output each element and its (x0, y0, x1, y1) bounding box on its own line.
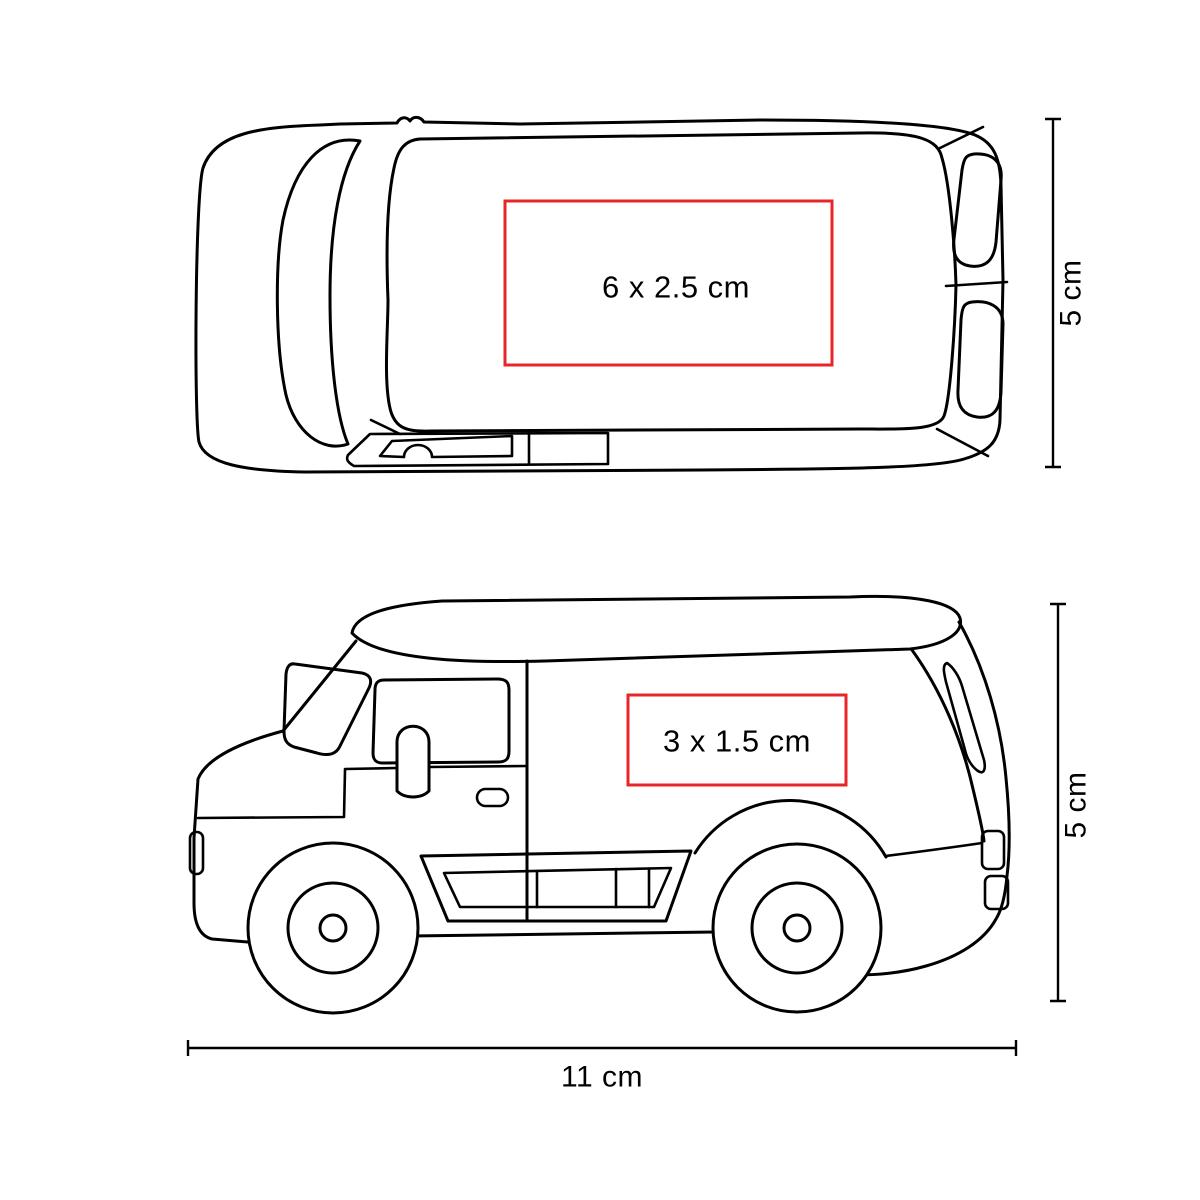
side-view-door-handle (477, 789, 508, 806)
side-view-rear-crease (886, 843, 982, 856)
van-side-view: 3 x 1.5 cm (190, 596, 1009, 1013)
top-view-rear-window-upper (954, 154, 1002, 266)
diagram-canvas: 6 x 2.5 cm 5 cm (0, 0, 1200, 1200)
rear-wheel-tire (713, 844, 881, 1012)
side-view-headlight (190, 832, 203, 874)
top-view-body-outline (196, 117, 1003, 472)
side-view-belt-line (345, 766, 527, 769)
van-top-view: 6 x 2.5 cm (196, 117, 1007, 472)
length-dimension: 11 cm (188, 1040, 1016, 1094)
side-print-area-label: 3 x 1.5 cm (663, 724, 811, 759)
side-view-taillight-upper (982, 831, 1004, 869)
side-view-door-window (373, 679, 509, 763)
side-view-rear-pillar (912, 650, 984, 841)
dimension-line (188, 1040, 1016, 1056)
side-height-dimension: 5 cm (1050, 604, 1093, 1001)
side-view-rocker-inner (444, 868, 671, 907)
side-view-mirror-bump (397, 726, 429, 797)
side-view-body-bottom (410, 932, 715, 936)
top-view-windshield (277, 140, 360, 446)
product-print-area-diagram: 6 x 2.5 cm 5 cm (0, 0, 1200, 1200)
top-height-dimension-label: 5 cm (1055, 259, 1088, 326)
top-view-side-step-inner (380, 436, 512, 457)
side-view-rocker-dividers (537, 869, 649, 907)
top-print-area-label: 6 x 2.5 cm (602, 270, 750, 305)
length-dimension-label: 11 cm (561, 1061, 643, 1094)
side-height-dimension-label: 5 cm (1060, 771, 1093, 838)
top-view-rear-window-lower (958, 302, 1003, 418)
top-view-rear-seam-lower (937, 429, 988, 456)
side-view-hood-line (198, 770, 345, 818)
side-view-roof (352, 596, 961, 661)
front-wheel-tire (248, 843, 418, 1013)
side-view-rocker-outer (421, 851, 691, 921)
top-height-dimension: 5 cm (1045, 119, 1088, 467)
